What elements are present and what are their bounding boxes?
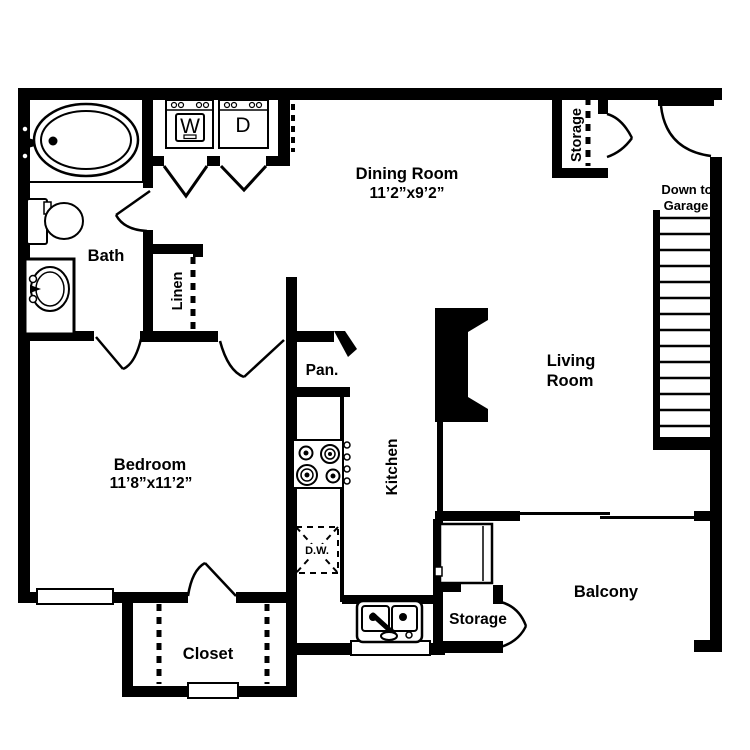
door-bifold-washer <box>164 166 207 196</box>
closet-label: Closet <box>183 645 234 663</box>
dryer-label: D <box>235 114 250 137</box>
bedroom-dims: 11’8”x11’2” <box>110 475 193 492</box>
balcony-sliding-door <box>518 512 696 519</box>
washer-label: W <box>180 115 200 138</box>
door-bath-bedroom <box>96 337 141 369</box>
bathroom-sink <box>25 259 74 334</box>
door-bifold-dryer <box>221 166 266 190</box>
balcony-label: Balcony <box>574 583 639 601</box>
toilet <box>27 199 83 244</box>
pantry-label: Pan. <box>306 362 339 379</box>
living-room-label-line2: Room <box>547 372 594 390</box>
storage-upper-label: Storage <box>569 108 585 162</box>
bedroom-label: Bedroom <box>114 456 186 474</box>
door-storage-upper <box>607 114 632 157</box>
stairs-label-line1: Down to <box>661 182 712 197</box>
living-room-label-line1: Living <box>547 352 596 370</box>
floor-plan: W D D.W. <box>0 0 750 750</box>
door-closet <box>188 563 236 596</box>
kitchen-sink <box>357 601 422 642</box>
dining-room-dims: 11’2”x9’2” <box>370 185 445 202</box>
stair-treads <box>660 218 710 426</box>
window-bedroom <box>37 589 113 604</box>
window-closet <box>188 683 238 698</box>
door-bath <box>116 191 150 231</box>
stove <box>293 440 350 488</box>
kitchen-counter-edge <box>340 397 344 602</box>
floor-plan-drawing: W D D.W. <box>0 0 750 750</box>
bath-label: Bath <box>88 247 125 265</box>
dining-room-label: Dining Room <box>356 165 459 183</box>
dishwasher-label: D.W. <box>305 545 329 557</box>
bathtub <box>21 99 143 182</box>
stairs-label-line2: Garage <box>664 198 709 213</box>
storage-lower-label: Storage <box>449 611 507 628</box>
door-bedroom <box>220 340 284 377</box>
refrigerator <box>435 524 492 583</box>
kitchen-label: Kitchen <box>384 439 401 496</box>
linen-label: Linen <box>170 272 186 311</box>
door-entry <box>658 99 714 156</box>
